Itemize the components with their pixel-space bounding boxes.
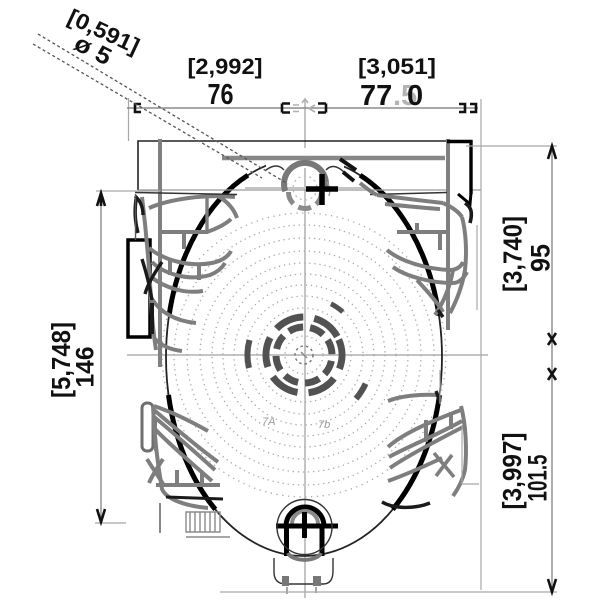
svg-text:[3,740]: [3,740] [497, 216, 527, 292]
svg-text:101.5: 101.5 [522, 455, 552, 502]
svg-text:0: 0 [407, 80, 423, 112]
svg-text:95: 95 [526, 244, 556, 272]
svg-text:146: 146 [72, 347, 100, 388]
svg-text:77: 77 [360, 80, 392, 112]
svg-text:7A: 7A [262, 416, 275, 428]
svg-text:[3,051]: [3,051] [358, 54, 436, 79]
svg-text:[2,992]: [2,992] [188, 54, 263, 79]
svg-text:7b: 7b [318, 419, 330, 431]
svg-text:76: 76 [208, 79, 234, 111]
